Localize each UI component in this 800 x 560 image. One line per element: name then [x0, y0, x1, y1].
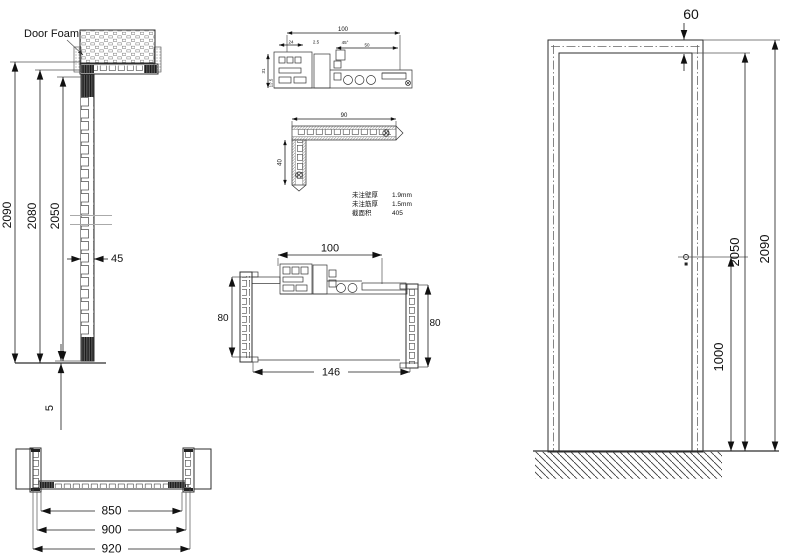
- dim-900-label: 900: [101, 523, 121, 537]
- extension-lines: [33, 489, 190, 549]
- right-slot: [382, 73, 406, 79]
- bar-wall: [292, 140, 295, 185]
- profile-center-chamber: [314, 54, 330, 88]
- chamber-circle: [367, 76, 376, 85]
- panel-cells: [54, 482, 168, 488]
- chamber: [334, 73, 341, 80]
- dim-146-label: 146: [322, 367, 340, 379]
- dim-50-label: 50: [364, 43, 370, 48]
- chamber: [334, 61, 341, 68]
- dim-31-label: 31: [261, 68, 266, 74]
- bar-wall: [292, 137, 396, 140]
- jamb-stop: [184, 449, 193, 452]
- bar-end-tip: [396, 126, 403, 140]
- left-section-view: Door Foam 2090 2080 2050 45 5: [0, 28, 161, 430]
- note-rib-thickness-label: 未注筋厚: [352, 199, 379, 208]
- note-wall-thickness-value: 1.9mm: [392, 192, 412, 199]
- jamb-stop: [31, 449, 40, 452]
- panel-end-block-left: [40, 482, 54, 488]
- dim-12-5-label: 12.5: [269, 78, 274, 87]
- chamber: [301, 267, 308, 274]
- dim-45-label: 45: [111, 253, 123, 265]
- bar-wall: [292, 126, 396, 129]
- dim-2050-label: 2050: [48, 202, 62, 229]
- chamber: [279, 57, 285, 63]
- chamber: [294, 77, 306, 83]
- rail-cells: [94, 66, 144, 74]
- extension-lines: [10, 62, 82, 361]
- column-cells: [81, 97, 94, 337]
- chamber-circle: [348, 284, 357, 293]
- jamb-left-cells: [32, 452, 39, 488]
- chamber: [283, 285, 294, 291]
- left-leg-cells: [242, 276, 250, 358]
- chamber: [283, 267, 290, 274]
- bar-end-tip: [292, 185, 306, 191]
- extension-lines: [692, 40, 780, 53]
- dim-angle-label: 45°: [342, 40, 349, 45]
- dim-2090-label: 2090: [757, 235, 772, 264]
- jamb-stop: [184, 488, 193, 491]
- chamber-circle: [337, 284, 346, 293]
- head-profile-detail: 100 24 2.5 45° 50 31 12.5: [261, 27, 412, 88]
- bottom-plan-section: 850 900 920: [16, 448, 211, 556]
- chamber: [283, 277, 303, 282]
- door-foam-label: Door Foam: [24, 28, 79, 40]
- lock-point: [685, 263, 688, 266]
- extension-lines: [418, 285, 428, 367]
- column-bottom-block: [81, 337, 94, 361]
- dim-100-label: 100: [321, 243, 339, 255]
- wall-block-right: [194, 449, 211, 489]
- dim-80-left-label: 80: [217, 313, 229, 324]
- head-center-chamber: [313, 265, 327, 294]
- left-arm: [252, 277, 280, 284]
- extension-lines: [292, 121, 396, 126]
- corner-profile-detail: 90 40 未注壁厚 1.9mm 未注筋厚 1.5mm 截面积 405: [278, 113, 412, 217]
- dim-5-label: 5: [44, 405, 56, 411]
- right-slot: [362, 283, 406, 290]
- jamb-plan-section: 100 80 80 146: [217, 243, 441, 379]
- frame-centerline: [551, 45, 700, 451]
- door-leaf-rect: [559, 53, 692, 452]
- extension-lines: [232, 277, 240, 357]
- note-section-area-value: 405: [392, 210, 403, 217]
- chamber: [296, 285, 307, 291]
- dim-40-label: 40: [278, 159, 284, 166]
- chamber: [279, 77, 291, 83]
- door-drawing-svg: Door Foam 2090 2080 2050 45 5: [0, 0, 800, 560]
- chamber: [329, 270, 336, 277]
- foam-block: [80, 30, 155, 63]
- chamber: [292, 267, 299, 274]
- dim-80-right-label: 80: [429, 318, 441, 329]
- ground-hatch: [535, 452, 722, 479]
- chamber: [287, 57, 293, 63]
- note-rib-thickness-value: 1.5mm: [392, 201, 412, 208]
- screw-boss-x: [406, 81, 410, 85]
- dim-24-label: 24: [288, 40, 294, 45]
- door-elevation-view: 60 1000 2050 2090: [533, 6, 780, 479]
- dim-850-label: 850: [101, 504, 121, 518]
- dim-1000-label: 1000: [711, 343, 726, 372]
- profile-notes-table: 未注壁厚 1.9mm 未注筋厚 1.5mm 截面积 405: [352, 190, 412, 217]
- dim-2050-label: 2050: [727, 238, 742, 267]
- dim-2080-label: 2080: [25, 202, 39, 229]
- dim-60-label: 60: [683, 6, 699, 22]
- chamber-circle: [344, 76, 353, 85]
- frame-outer-rect: [548, 40, 703, 452]
- dim-90-label: 90: [341, 113, 348, 119]
- dim-notch-label: 2.5: [313, 40, 320, 45]
- technical-drawing-canvas: Door Foam 2090 2080 2050 45 5: [0, 0, 800, 560]
- bar-wall: [303, 140, 306, 185]
- rail-end-block-left: [81, 65, 94, 73]
- note-wall-thickness-label: 未注壁厚: [352, 190, 379, 199]
- dim-100-label: 100: [338, 27, 349, 33]
- dim-920-label: 920: [101, 542, 121, 556]
- right-leg-cells: [408, 288, 416, 364]
- note-section-area-label: 截面积: [352, 208, 372, 217]
- rail-end-block-right: [144, 65, 157, 73]
- chamber: [279, 68, 301, 73]
- bar-cells: [297, 130, 391, 137]
- chamber-circle: [355, 76, 364, 85]
- chamber: [336, 50, 345, 60]
- chamber: [295, 57, 301, 63]
- dim-2090-label: 2090: [0, 201, 14, 228]
- jamb-right-cells: [185, 452, 192, 488]
- column-top-block: [81, 75, 94, 97]
